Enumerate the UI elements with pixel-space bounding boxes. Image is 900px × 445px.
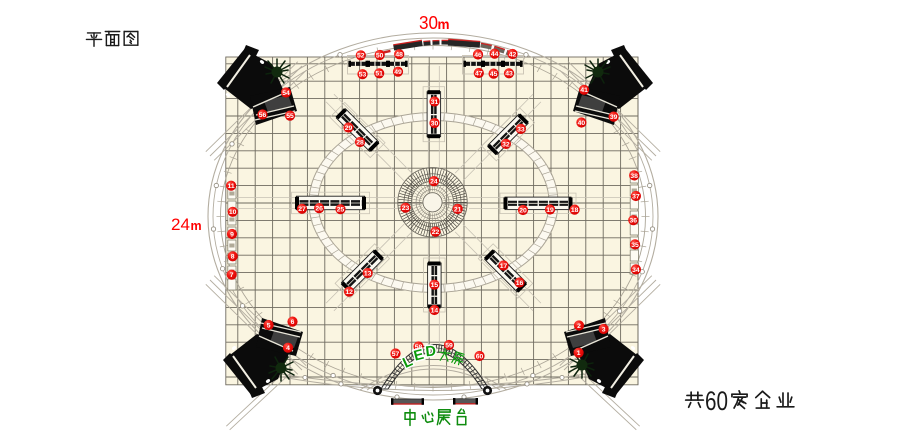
svg-text:3: 3 xyxy=(602,326,606,333)
svg-text:50: 50 xyxy=(376,52,384,59)
svg-text:57: 57 xyxy=(392,351,400,358)
svg-text:52: 52 xyxy=(357,53,365,60)
svg-text:21: 21 xyxy=(454,206,462,213)
svg-text:9: 9 xyxy=(230,231,234,238)
svg-text:2: 2 xyxy=(577,323,581,330)
svg-text:8: 8 xyxy=(231,254,235,261)
svg-text:48: 48 xyxy=(395,52,403,59)
svg-text:7: 7 xyxy=(230,272,234,279)
svg-text:32: 32 xyxy=(502,141,510,148)
svg-text:15: 15 xyxy=(431,282,439,289)
svg-text:13: 13 xyxy=(364,270,372,277)
svg-text:37: 37 xyxy=(632,193,640,200)
svg-text:11: 11 xyxy=(228,183,235,190)
svg-text:24: 24 xyxy=(430,179,438,186)
svg-text:29: 29 xyxy=(345,125,353,132)
svg-text:44: 44 xyxy=(491,51,499,58)
svg-text:m: m xyxy=(191,219,202,233)
svg-text:47: 47 xyxy=(475,70,483,77)
svg-text:23: 23 xyxy=(402,205,410,212)
svg-text:38: 38 xyxy=(630,173,638,180)
svg-text:30: 30 xyxy=(431,120,439,127)
svg-text:22: 22 xyxy=(432,229,440,236)
svg-text:34: 34 xyxy=(632,267,640,274)
svg-text:55: 55 xyxy=(286,113,294,120)
svg-text:60: 60 xyxy=(476,353,484,360)
svg-text:24: 24 xyxy=(171,215,190,234)
svg-text:42: 42 xyxy=(509,51,517,58)
svg-text:26: 26 xyxy=(315,206,323,213)
svg-text:51: 51 xyxy=(375,71,383,78)
svg-text:39: 39 xyxy=(610,114,618,121)
svg-text:19: 19 xyxy=(546,207,554,214)
svg-text:25: 25 xyxy=(337,207,345,214)
svg-text:33: 33 xyxy=(517,126,525,133)
svg-text:40: 40 xyxy=(578,120,586,127)
svg-text:16: 16 xyxy=(516,280,524,287)
svg-text:18: 18 xyxy=(571,207,579,214)
svg-text:46: 46 xyxy=(474,52,482,59)
svg-text:60: 60 xyxy=(705,386,728,416)
svg-text:14: 14 xyxy=(431,307,439,314)
svg-text:45: 45 xyxy=(490,71,498,78)
svg-text:D: D xyxy=(425,343,437,360)
svg-text:20: 20 xyxy=(519,207,527,214)
svg-text:53: 53 xyxy=(359,72,367,79)
svg-text:6: 6 xyxy=(291,319,295,326)
svg-text:56: 56 xyxy=(259,112,267,119)
svg-text:27: 27 xyxy=(298,206,306,213)
svg-text:43: 43 xyxy=(505,71,513,78)
svg-text:17: 17 xyxy=(500,263,508,270)
svg-text:36: 36 xyxy=(630,218,638,225)
svg-text:12: 12 xyxy=(345,289,353,296)
svg-text:4: 4 xyxy=(286,345,290,352)
svg-text:59: 59 xyxy=(445,342,453,349)
svg-text:10: 10 xyxy=(229,209,237,216)
svg-text:54: 54 xyxy=(282,90,290,97)
svg-text:35: 35 xyxy=(631,242,639,249)
svg-text:m: m xyxy=(438,17,450,32)
svg-text:49: 49 xyxy=(394,69,402,76)
svg-text:28: 28 xyxy=(356,139,364,146)
svg-text:30: 30 xyxy=(419,12,438,33)
svg-text:1: 1 xyxy=(577,350,581,357)
svg-text:5: 5 xyxy=(267,322,271,329)
svg-text:41: 41 xyxy=(580,87,588,94)
svg-text:31: 31 xyxy=(431,99,439,106)
